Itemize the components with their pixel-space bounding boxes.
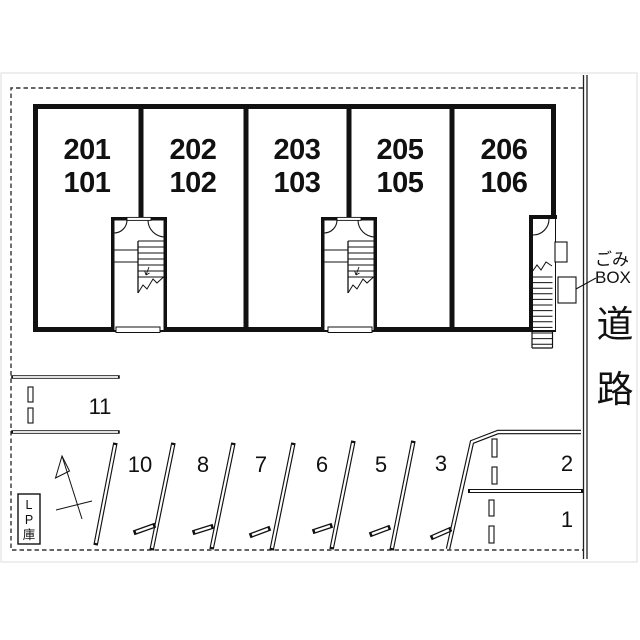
entrance-threshold (127, 217, 151, 220)
entrance-step (328, 327, 372, 333)
road-label: 道 路 (592, 292, 638, 422)
north-arrow (56, 456, 93, 519)
entrance-step (116, 327, 160, 333)
parking-space-label-3: 3 (419, 451, 463, 477)
site-plan-image: 201 101 202 102 203 103 205 105 206 106 … (0, 0, 640, 640)
unit-label-201-101: 201 101 (37, 134, 137, 200)
site-plan-linework (0, 0, 640, 640)
unit-label-206-106: 206 106 (454, 134, 554, 200)
parking-dividers (96, 432, 581, 549)
wheel-stop (28, 387, 33, 402)
parking-space-label-2: 2 (545, 451, 589, 477)
garbage-box-label: ごみ BOX (595, 251, 631, 286)
entrance-threshold (337, 217, 361, 220)
parking-space-label-10: 10 (118, 452, 162, 478)
stairwell-middle (321, 217, 377, 332)
parking-space-label-5: 5 (359, 452, 403, 478)
wheel-stops (136, 526, 449, 537)
unit-label-202-102: 202 102 (143, 134, 243, 200)
parking-space-label-7: 7 (239, 452, 283, 478)
stair-lower-walls (532, 332, 553, 348)
garbage-box (558, 277, 576, 303)
unit-label-203-103: 203 103 (247, 134, 347, 200)
stairwell-right (529, 215, 557, 348)
garbage-box-leader-line (576, 278, 596, 289)
unit-label-205-105: 205 105 (350, 134, 450, 200)
parking-space-label-8: 8 (181, 452, 225, 478)
parking-space-label-11: 11 (78, 394, 122, 420)
parking-space-label-1: 1 (545, 507, 589, 533)
stairwell-left (111, 217, 167, 332)
wall-box (555, 242, 567, 262)
road-boundary-line (584, 75, 588, 559)
wheel-stop (28, 408, 33, 423)
lp-storage-label: L P 庫 (18, 498, 40, 543)
parking-space-label-6: 6 (300, 452, 344, 478)
